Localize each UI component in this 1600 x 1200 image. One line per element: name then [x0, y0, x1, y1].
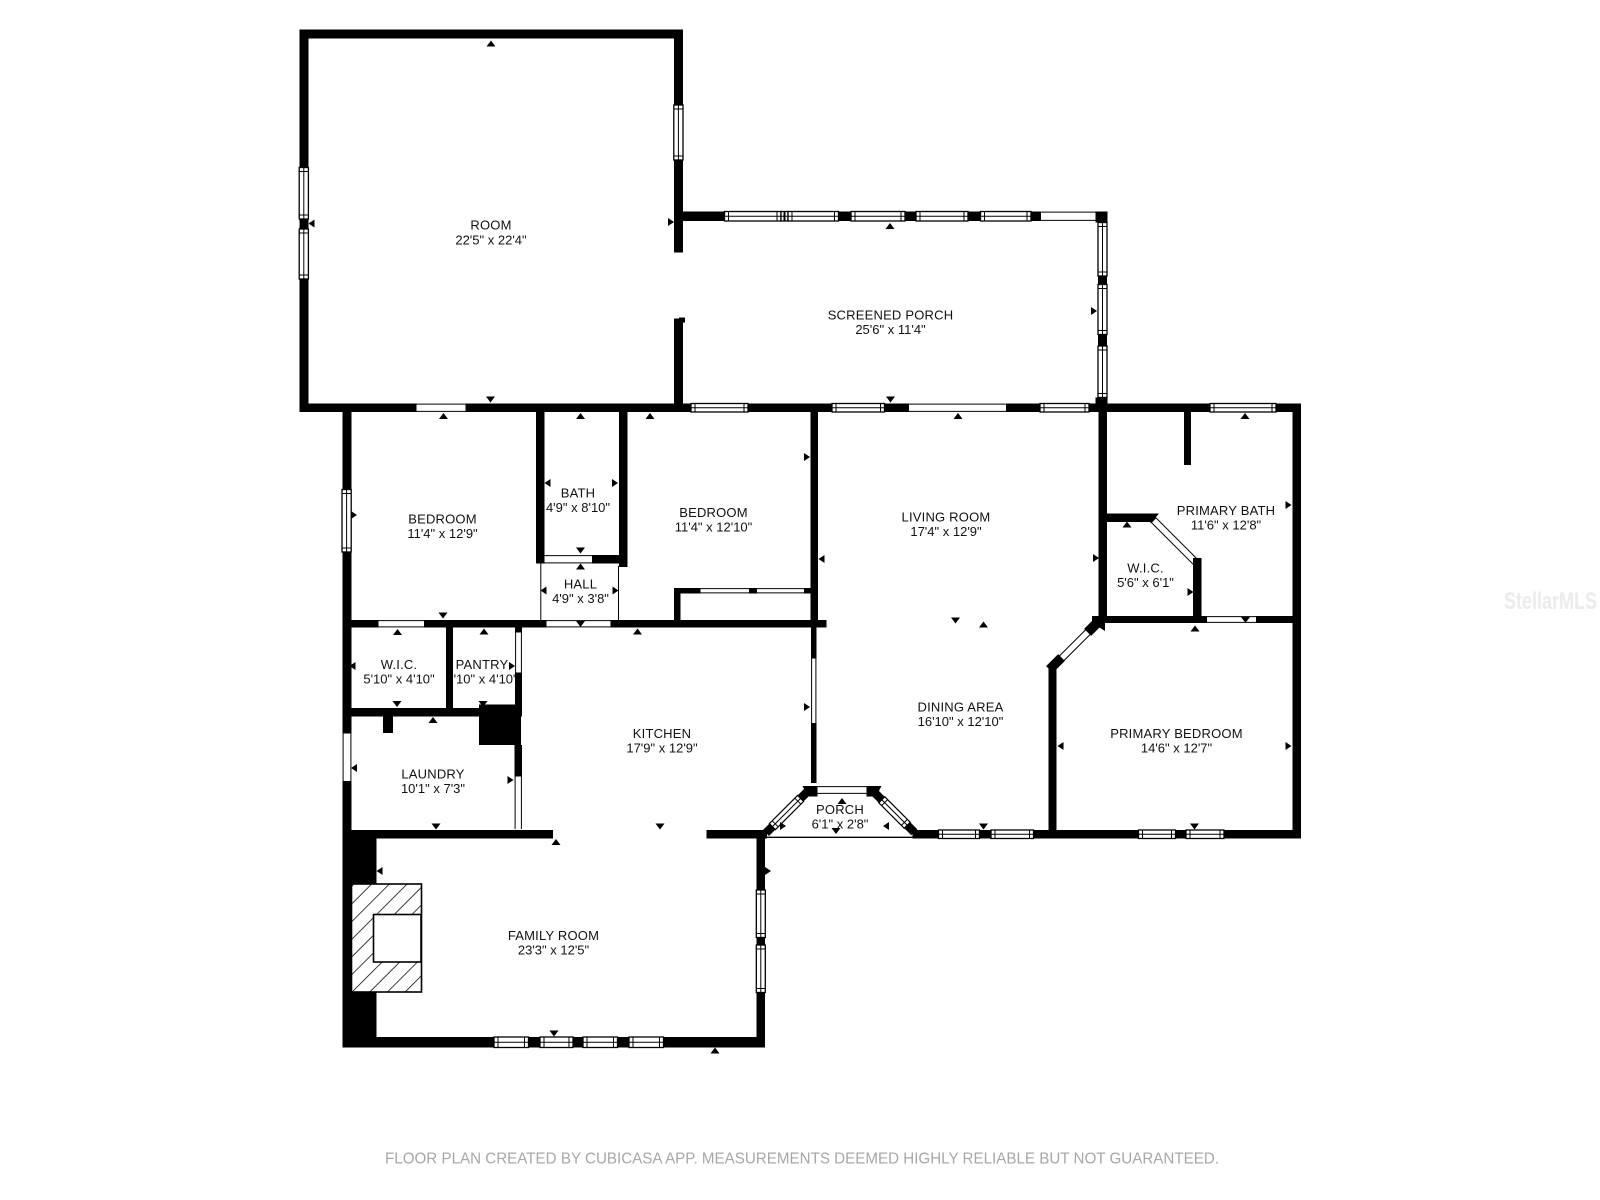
svg-text:PORCH: PORCH: [816, 802, 864, 817]
svg-text:KITCHEN: KITCHEN: [633, 726, 691, 741]
svg-text:BEDROOM: BEDROOM: [679, 505, 748, 520]
svg-text:22'5" x 22'4": 22'5" x 22'4": [455, 232, 527, 247]
svg-text:14'6" x 12'7": 14'6" x 12'7": [1141, 741, 1213, 756]
svg-text:6'1" x 2'8": 6'1" x 2'8": [812, 817, 869, 832]
svg-text:W.I.C.: W.I.C.: [1127, 561, 1164, 576]
svg-text:ROOM: ROOM: [470, 218, 511, 233]
svg-text:17'9" x 12'9": 17'9" x 12'9": [626, 741, 698, 756]
svg-text:5'6" x 6'1": 5'6" x 6'1": [1117, 575, 1174, 590]
svg-text:4'9" x 3'8": 4'9" x 3'8": [552, 591, 609, 606]
svg-text:4'9" x 8'10": 4'9" x 8'10": [546, 500, 610, 515]
svg-text:HALL: HALL: [564, 576, 597, 591]
svg-text:PRIMARY BEDROOM: PRIMARY BEDROOM: [1110, 726, 1243, 741]
svg-text:PRIMARY BATH: PRIMARY BATH: [1177, 503, 1275, 518]
svg-text:11'6" x 12'8": 11'6" x 12'8": [1191, 518, 1262, 533]
svg-text:PANTRY: PANTRY: [456, 657, 509, 672]
svg-text:23'3" x 12'5": 23'3" x 12'5": [518, 943, 590, 958]
svg-text:FLOOR PLAN CREATED BY CUBICASA: FLOOR PLAN CREATED BY CUBICASA APP. MEAS…: [385, 1151, 1219, 1168]
svg-text:5'10" x 4'10": 5'10" x 4'10": [363, 672, 435, 687]
svg-text:11'4" x 12'9": 11'4" x 12'9": [407, 526, 478, 541]
svg-text:BEDROOM: BEDROOM: [408, 512, 477, 527]
svg-text:17'4" x 12'9": 17'4" x 12'9": [910, 524, 982, 539]
svg-text:DINING AREA: DINING AREA: [918, 700, 1004, 715]
svg-text:SCREENED PORCH: SCREENED PORCH: [828, 308, 954, 323]
svg-text:LAUNDRY: LAUNDRY: [401, 767, 464, 782]
svg-text:10'1" x 7'3": 10'1" x 7'3": [401, 781, 465, 796]
svg-text:BATH: BATH: [561, 485, 596, 500]
svg-text:W.I.C.: W.I.C.: [381, 657, 418, 672]
svg-text:LIVING ROOM: LIVING ROOM: [902, 510, 991, 525]
svg-text:25'6" x 11'4": 25'6" x 11'4": [855, 322, 926, 337]
svg-text:StellarMLS: StellarMLS: [1504, 588, 1597, 615]
svg-text:3'10" x 4'10": 3'10" x 4'10": [446, 672, 518, 687]
svg-text:FAMILY ROOM: FAMILY ROOM: [508, 928, 599, 943]
svg-text:11'4" x 12'10": 11'4" x 12'10": [675, 519, 753, 534]
svg-text:16'10" x 12'10": 16'10" x 12'10": [918, 714, 1004, 729]
